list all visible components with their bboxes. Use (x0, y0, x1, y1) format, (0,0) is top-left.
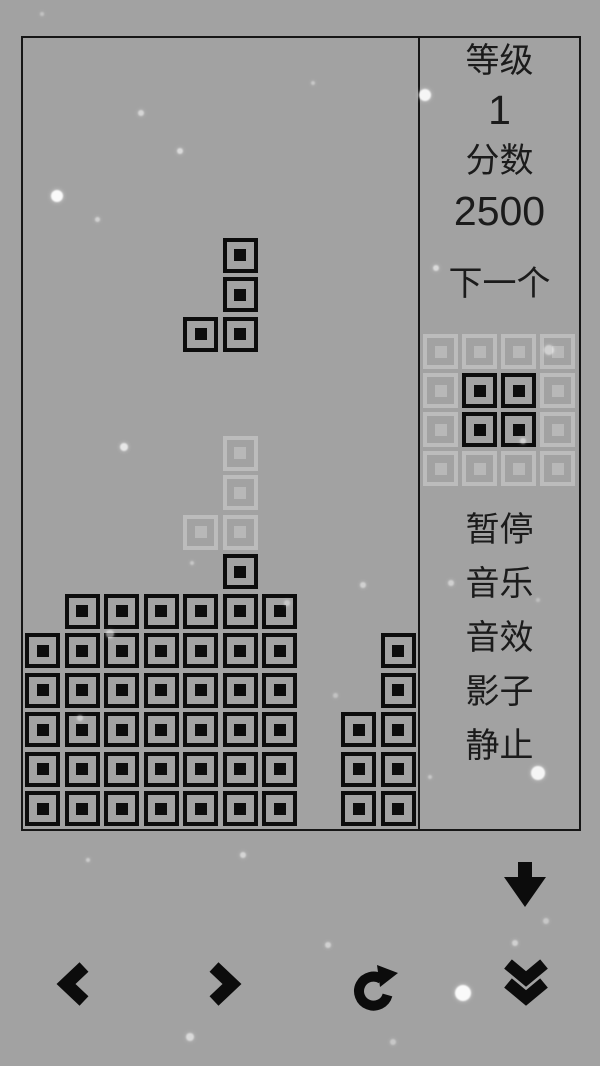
stack-block (144, 594, 179, 629)
stack-block (65, 633, 100, 668)
stack-block (262, 633, 297, 668)
next-cell-empty (462, 334, 497, 369)
soft-drop-button[interactable] (502, 862, 548, 908)
stack-block (223, 791, 258, 826)
next-cell-empty (423, 373, 458, 408)
double-chevron-down-icon (503, 958, 549, 1006)
stack-block (25, 673, 60, 708)
ghost-piece-block (223, 436, 258, 471)
stack-block (144, 673, 179, 708)
stack-block (25, 633, 60, 668)
stack-block (223, 554, 258, 589)
menu-item-sound[interactable]: 音效 (420, 616, 579, 660)
game-board (23, 38, 418, 829)
stack-block (223, 712, 258, 747)
stack-block (183, 673, 218, 708)
stack-block (144, 791, 179, 826)
stack-block (65, 594, 100, 629)
score-label: 分数 (420, 139, 579, 183)
stack-block (381, 752, 416, 787)
stack-block (183, 791, 218, 826)
rotate-button[interactable] (352, 963, 399, 1015)
hard-drop-button[interactable] (503, 958, 549, 1006)
next-cell-empty (423, 451, 458, 486)
stack-block (223, 594, 258, 629)
stack-block (262, 673, 297, 708)
stack-block (104, 673, 139, 708)
next-cell-empty (423, 334, 458, 369)
stack-block (381, 633, 416, 668)
ghost-piece-block (183, 515, 218, 550)
speckle (186, 1033, 194, 1041)
stack-block (223, 752, 258, 787)
stack-block (183, 712, 218, 747)
level-value: 1 (420, 88, 579, 132)
level-label: 等级 (420, 39, 579, 83)
speckle (325, 942, 331, 948)
next-piece-preview (421, 332, 577, 488)
stack-block (144, 712, 179, 747)
stack-block (223, 633, 258, 668)
stack-block (262, 791, 297, 826)
stack-block (381, 791, 416, 826)
stack-block (104, 712, 139, 747)
menu-item-still[interactable]: 静止 (420, 724, 579, 768)
next-cell-empty (423, 412, 458, 447)
stack-block (104, 633, 139, 668)
chevron-left-icon (57, 961, 91, 1007)
speckle (543, 918, 549, 924)
stack-block (183, 752, 218, 787)
next-cell-filled (501, 412, 536, 447)
stack-block (262, 594, 297, 629)
move-left-button[interactable] (57, 961, 91, 1007)
stack-block (183, 594, 218, 629)
next-cell-empty (540, 334, 575, 369)
stack-block (341, 752, 376, 787)
ghost-piece-block (223, 475, 258, 510)
stack-block (104, 791, 139, 826)
menu-item-music[interactable]: 音乐 (420, 562, 579, 606)
stack-block (144, 633, 179, 668)
next-cell-empty (501, 451, 536, 486)
next-cell-empty (462, 451, 497, 486)
stack-block (65, 752, 100, 787)
stack-block (381, 712, 416, 747)
ghost-piece-block (223, 515, 258, 550)
speckle (455, 985, 471, 1001)
down-arrow-icon (502, 862, 548, 908)
next-cell-empty (540, 412, 575, 447)
stack-block (262, 752, 297, 787)
next-label: 下一个 (420, 262, 579, 306)
stack-block (104, 594, 139, 629)
stack-block (65, 791, 100, 826)
next-cell-empty (540, 373, 575, 408)
menu-item-shadow[interactable]: 影子 (420, 670, 579, 714)
stack-block (144, 752, 179, 787)
speckle (390, 1039, 396, 1045)
game-frame: 等级 1 分数 2500 下一个 暂停 音乐 音效 影子 静止 (21, 36, 581, 831)
stack-block (25, 791, 60, 826)
stack-block (65, 712, 100, 747)
next-cell-filled (462, 412, 497, 447)
falling-piece-block (223, 238, 258, 273)
stack-block (65, 673, 100, 708)
speckle (40, 12, 44, 16)
next-cell-empty (501, 334, 536, 369)
stack-block (25, 712, 60, 747)
stack-block (104, 752, 139, 787)
stack-block (223, 673, 258, 708)
stack-block (341, 712, 376, 747)
menu-item-pause[interactable]: 暂停 (420, 508, 579, 552)
score-value: 2500 (420, 189, 579, 233)
next-cell-filled (462, 373, 497, 408)
move-right-button[interactable] (207, 961, 241, 1007)
speckle (512, 940, 518, 946)
next-cell-empty (540, 451, 575, 486)
chevron-right-icon (207, 961, 241, 1007)
falling-piece-block (223, 277, 258, 312)
next-cell-filled (501, 373, 536, 408)
falling-piece-block (223, 317, 258, 352)
stack-block (183, 633, 218, 668)
stack-block (341, 791, 376, 826)
stack-block (262, 712, 297, 747)
falling-piece-block (183, 317, 218, 352)
speckle (240, 852, 246, 858)
rotate-clockwise-icon (352, 963, 399, 1015)
speckle (86, 858, 90, 862)
stack-block (381, 673, 416, 708)
stack-block (25, 752, 60, 787)
